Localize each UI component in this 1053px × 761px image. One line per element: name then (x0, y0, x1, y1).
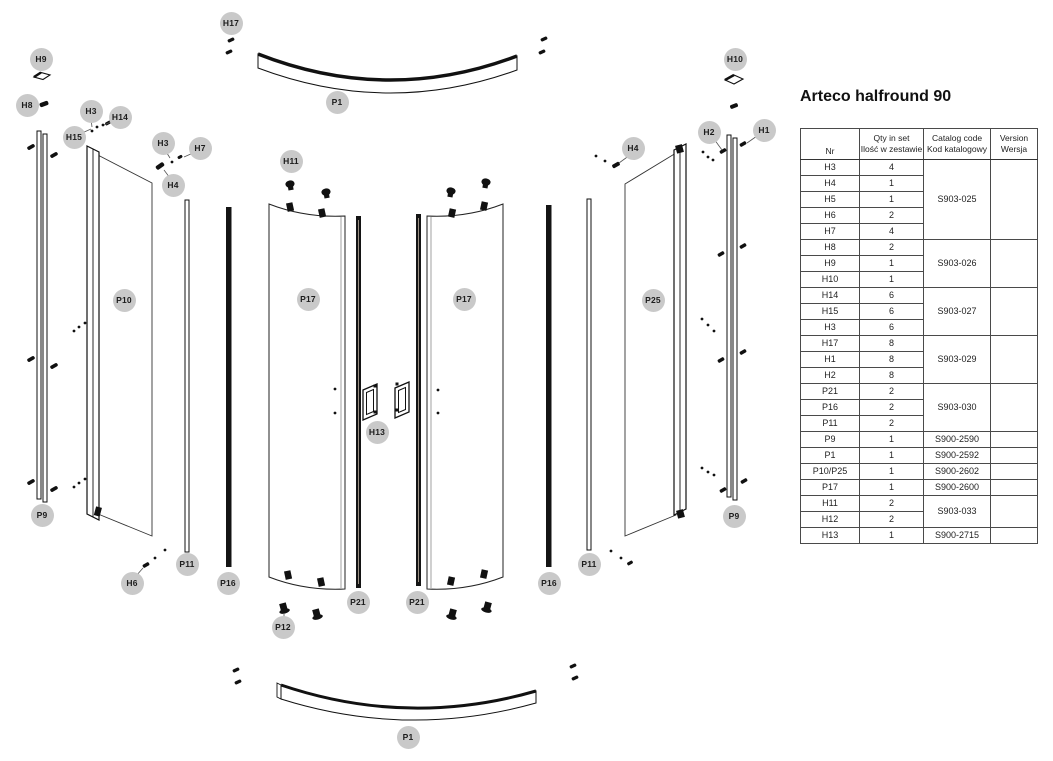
catalog-code: S900-2600 (924, 480, 991, 496)
wall-bracket-h9 (34, 73, 50, 80)
part-qty: 6 (860, 320, 924, 336)
part-badge-p17: P17 (297, 288, 320, 311)
part-qty: 6 (860, 288, 924, 304)
version-cell (991, 496, 1038, 528)
part-qty: 1 (860, 464, 924, 480)
part-badge-p21: P21 (347, 591, 370, 614)
part-qty: 4 (860, 160, 924, 176)
wall-profile-p9-left (37, 131, 47, 502)
header-code-pl: Kod katalogowy (924, 144, 990, 155)
parts-row-h3: H34S903-025 (801, 160, 1038, 176)
part-nr: H2 (801, 368, 860, 384)
part-badge-h6: H6 (121, 572, 144, 595)
part-qty: 1 (860, 176, 924, 192)
part-qty: 2 (860, 384, 924, 400)
part-nr: H7 (801, 224, 860, 240)
catalog-page: H17H9H8H3H14H15H3H7H4P1H11H10H2H1H4P10P1… (0, 0, 1053, 761)
part-badge-h4: H4 (622, 137, 645, 160)
version-cell (991, 432, 1038, 448)
part-nr: H17 (801, 336, 860, 352)
catalog-code: S900-2592 (924, 448, 991, 464)
part-badge-h3: H3 (80, 100, 103, 123)
part-badge-p25: P25 (642, 289, 665, 312)
part-badge-p1: P1 (397, 726, 420, 749)
strip-p21-left (356, 216, 361, 588)
part-nr: H12 (801, 512, 860, 528)
part-nr: H14 (801, 288, 860, 304)
parts-table: Nr Qty in set Ilość w zestawie Catalog c… (800, 128, 1038, 544)
version-cell (991, 528, 1038, 544)
part-badge-h9: H9 (30, 48, 53, 71)
bottom-rail-p1 (277, 683, 536, 720)
header-version-en: Version (991, 133, 1037, 144)
part-badge-p9: P9 (723, 505, 746, 528)
door-p17-left (269, 202, 345, 589)
header-qty-en: Qty in set (860, 133, 923, 144)
catalog-code: S903-029 (924, 336, 991, 384)
strip-p11-left (185, 200, 189, 552)
part-nr: H3 (801, 160, 860, 176)
catalog-code: S903-033 (924, 496, 991, 528)
magnet-strip-p16-left (226, 207, 232, 567)
catalog-code: S900-2715 (924, 528, 991, 544)
parts-row-h11: H112S903-033 (801, 496, 1038, 512)
header-qty-pl: Ilość w zestawie (860, 144, 923, 155)
catalog-code: S900-2590 (924, 432, 991, 448)
fixed-panel-p10 (87, 146, 152, 536)
part-badge-p9: P9 (31, 504, 54, 527)
part-qty: 1 (860, 272, 924, 288)
part-qty: 1 (860, 192, 924, 208)
parts-row-p21: P212S903-030 (801, 384, 1038, 400)
catalog-code: S903-025 (924, 160, 991, 240)
part-badge-p17: P17 (453, 288, 476, 311)
part-qty: 2 (860, 512, 924, 528)
header-qty: Qty in set Ilość w zestawie (860, 129, 924, 160)
part-badge-p12: P12 (272, 616, 295, 639)
part-badge-h13: H13 (366, 421, 389, 444)
part-nr: H6 (801, 208, 860, 224)
part-badge-p16: P16 (217, 572, 240, 595)
part-nr: P17 (801, 480, 860, 496)
part-qty: 2 (860, 208, 924, 224)
part-badge-h11: H11 (280, 150, 303, 173)
part-qty: 8 (860, 352, 924, 368)
part-qty: 2 (860, 416, 924, 432)
part-nr: H11 (801, 496, 860, 512)
part-qty: 1 (860, 480, 924, 496)
part-badge-p11: P11 (176, 553, 199, 576)
part-nr: P16 (801, 400, 860, 416)
parts-row-h8: H82S903-026 (801, 240, 1038, 256)
part-nr: P11 (801, 416, 860, 432)
strip-p21-right (416, 214, 421, 586)
header-nr: Nr (801, 129, 860, 160)
part-badge-h14: H14 (109, 106, 132, 129)
header-version: Version Wersja (991, 129, 1038, 160)
part-nr: H9 (801, 256, 860, 272)
parts-row-h14: H146S903-027 (801, 288, 1038, 304)
version-cell (991, 384, 1038, 432)
part-nr: H13 (801, 528, 860, 544)
catalog-code: S903-030 (924, 384, 991, 432)
part-nr: H4 (801, 176, 860, 192)
parts-table-header: Nr Qty in set Ilość w zestawie Catalog c… (801, 129, 1038, 160)
part-badge-p21: P21 (406, 591, 429, 614)
version-cell (991, 336, 1038, 384)
part-nr: H1 (801, 352, 860, 368)
part-badge-p1: P1 (326, 91, 349, 114)
part-qty: 2 (860, 496, 924, 512)
version-cell (991, 448, 1038, 464)
bottom-guides-p12 (277, 601, 494, 621)
parts-row-h13: H131S900-2715 (801, 528, 1038, 544)
part-nr: H8 (801, 240, 860, 256)
parts-row-p9: P91S900-2590 (801, 432, 1038, 448)
part-qty: 6 (860, 304, 924, 320)
part-qty: 2 (860, 400, 924, 416)
part-badge-h1: H1 (753, 119, 776, 142)
page-title: Arteco halfround 90 (800, 88, 951, 106)
version-cell (991, 464, 1038, 480)
catalog-code: S900-2602 (924, 464, 991, 480)
parts-row-p17: P171S900-2600 (801, 480, 1038, 496)
part-qty: 1 (860, 448, 924, 464)
part-badge-p11: P11 (578, 553, 601, 576)
top-rail-p1 (258, 54, 517, 93)
handles-h13 (363, 382, 409, 420)
part-nr: H3 (801, 320, 860, 336)
header-code: Catalog code Kod katalogowy (924, 129, 991, 160)
part-badge-h15: H15 (63, 126, 86, 149)
part-nr: H15 (801, 304, 860, 320)
catalog-code: S903-026 (924, 240, 991, 288)
part-badge-h8: H8 (16, 94, 39, 117)
parts-table-body: H34S903-025H41H51H62H74H82S903-026H91H10… (801, 160, 1038, 544)
part-badge-h17: H17 (220, 12, 243, 35)
version-cell (991, 240, 1038, 288)
header-version-pl: Wersja (991, 144, 1037, 155)
part-nr: P10/P25 (801, 464, 860, 480)
part-qty: 8 (860, 368, 924, 384)
magnet-strip-p16-right (546, 205, 552, 567)
part-badge-h10: H10 (724, 48, 747, 71)
door-p17-right (427, 201, 503, 589)
version-cell (991, 160, 1038, 240)
parts-row-p10-p25: P10/P251S900-2602 (801, 464, 1038, 480)
part-nr: P21 (801, 384, 860, 400)
parts-row-h17: H178S903-029 (801, 336, 1038, 352)
part-nr: H10 (801, 272, 860, 288)
part-badge-p10: P10 (113, 289, 136, 312)
version-cell (991, 288, 1038, 336)
version-cell (991, 480, 1038, 496)
part-qty: 1 (860, 432, 924, 448)
fixed-panel-p25 (625, 144, 686, 536)
part-badge-p16: P16 (538, 572, 561, 595)
part-nr: P9 (801, 432, 860, 448)
part-badge-h2: H2 (698, 121, 721, 144)
wall-bracket-h10 (725, 75, 743, 84)
parts-row-p1: P11S900-2592 (801, 448, 1038, 464)
part-nr: H5 (801, 192, 860, 208)
wall-profile-p9-right (727, 135, 737, 500)
part-qty: 8 (860, 336, 924, 352)
part-badge-h4: H4 (162, 174, 185, 197)
part-qty: 4 (860, 224, 924, 240)
part-badge-h7: H7 (189, 137, 212, 160)
part-nr: P1 (801, 448, 860, 464)
strip-p11-right (587, 199, 591, 550)
part-badge-h3: H3 (152, 132, 175, 155)
header-code-en: Catalog code (924, 133, 990, 144)
part-qty: 1 (860, 528, 924, 544)
roller-knobs-h11 (285, 178, 491, 199)
part-qty: 1 (860, 256, 924, 272)
catalog-code: S903-027 (924, 288, 991, 336)
part-qty: 2 (860, 240, 924, 256)
